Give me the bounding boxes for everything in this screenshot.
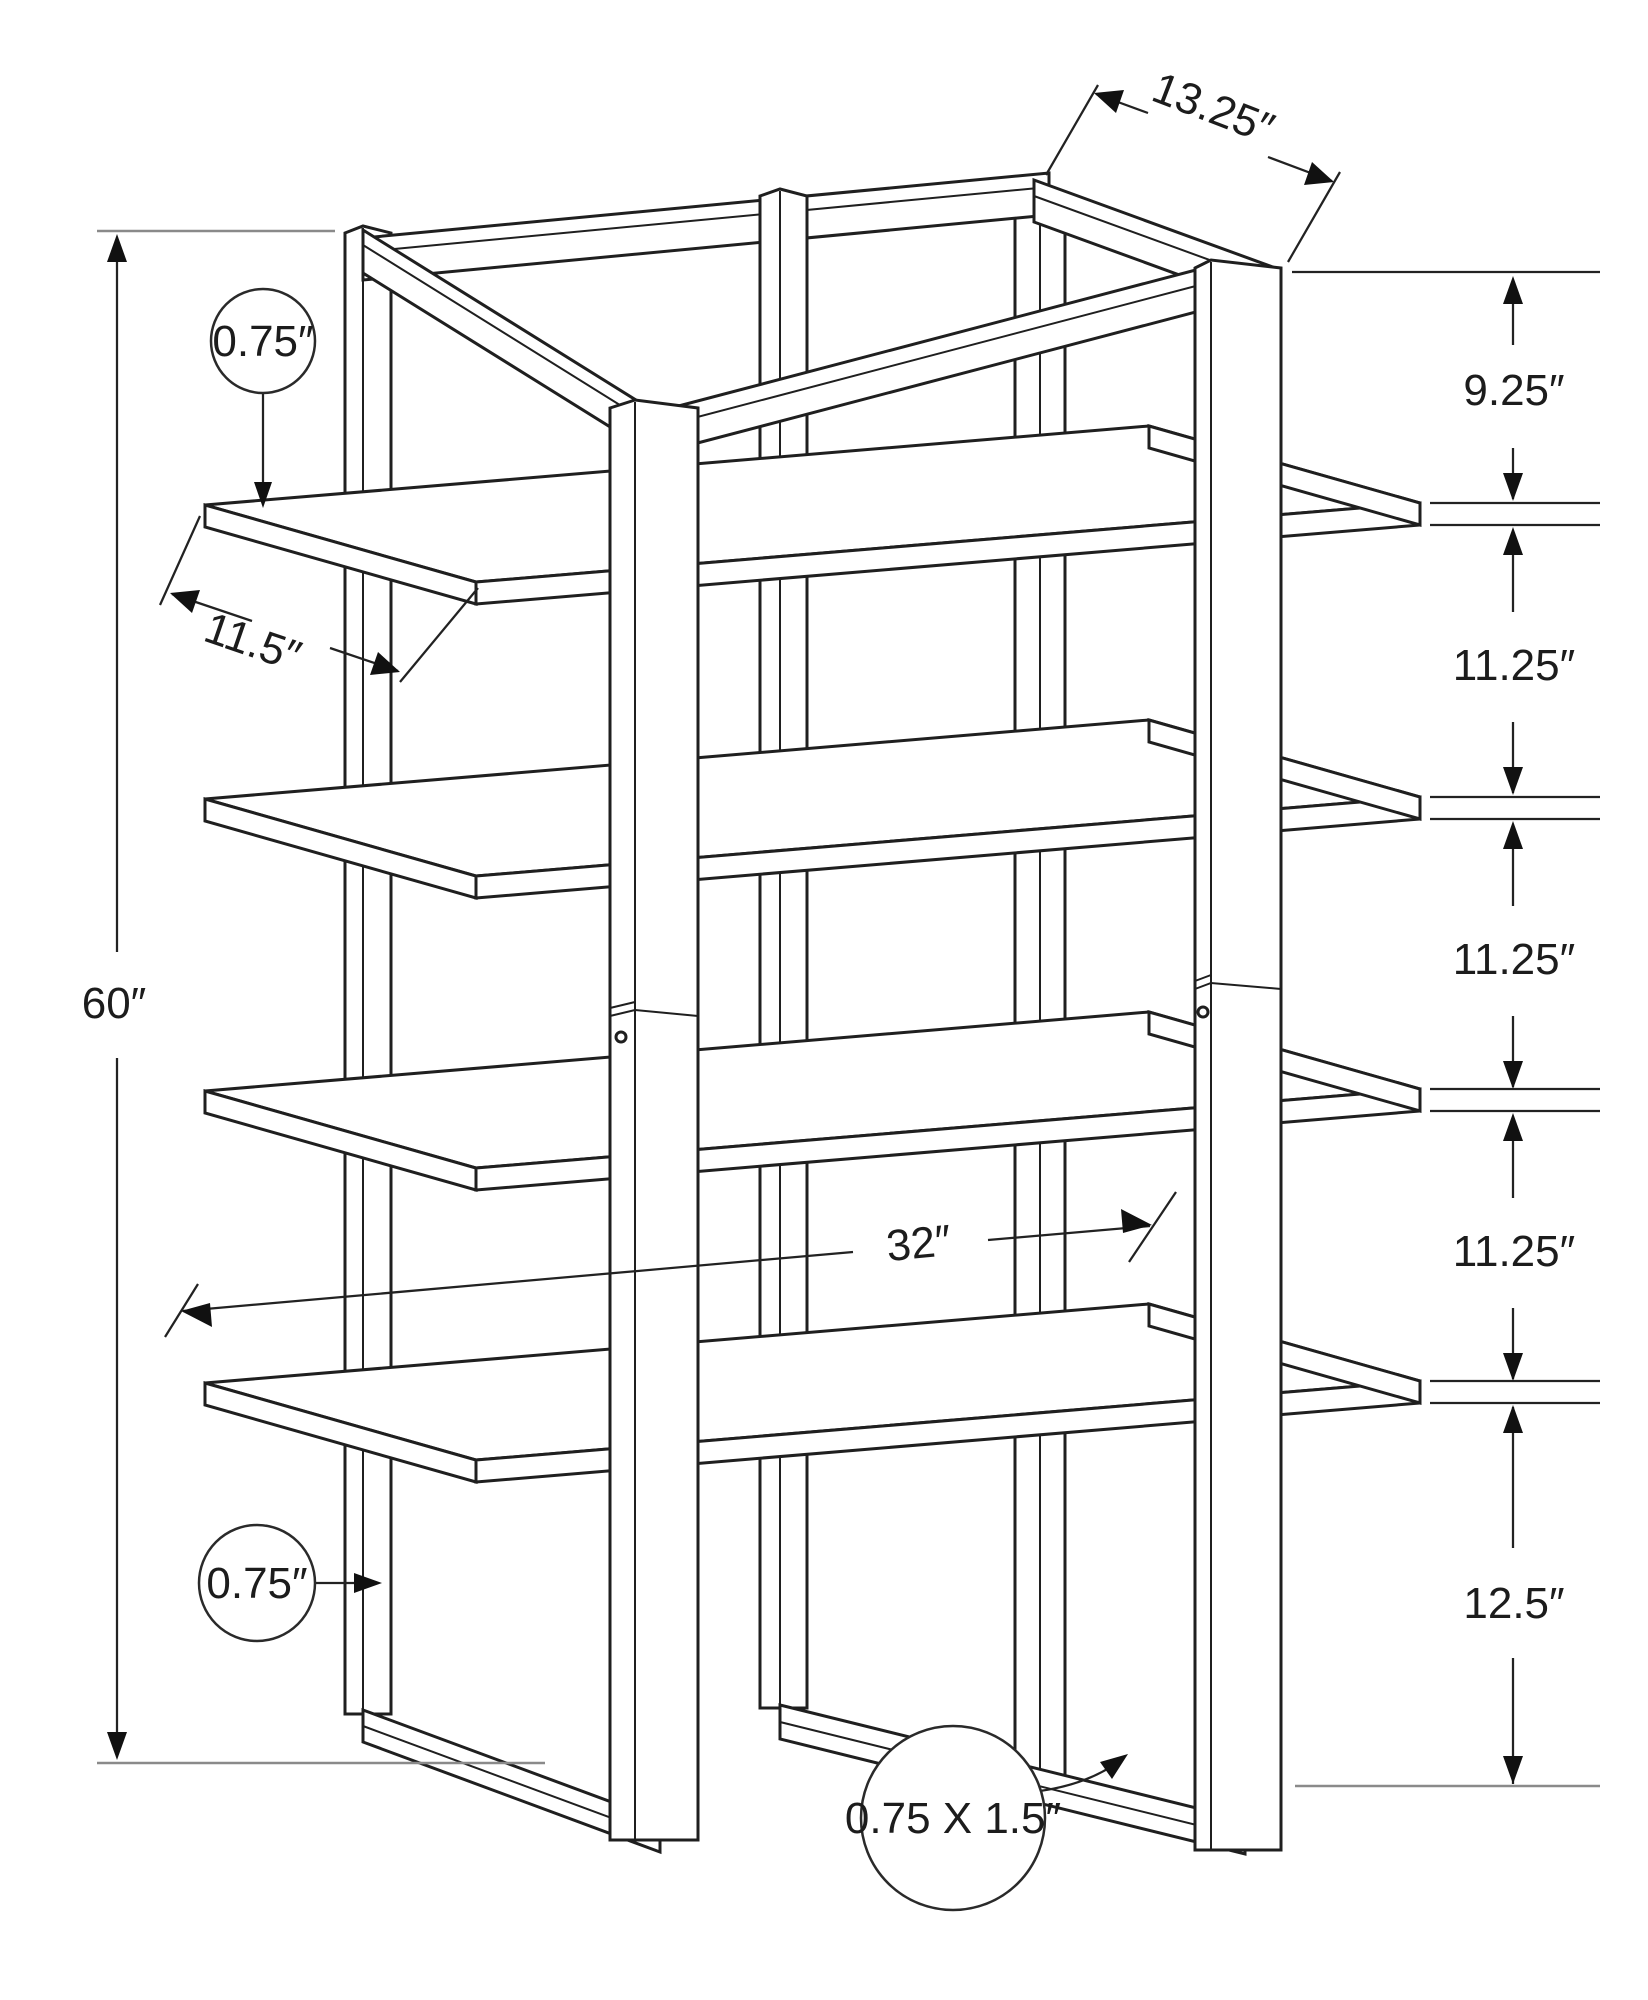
frame-depth-label: 13.25″ bbox=[1146, 63, 1281, 154]
left-post-screw-hole bbox=[616, 1032, 626, 1042]
top-front-beam-edge bbox=[648, 282, 1211, 430]
post-thickness-label: 0.75″ bbox=[206, 1559, 307, 1608]
right-front-post-body bbox=[1195, 260, 1281, 1850]
gap-1-arrow-down bbox=[1503, 767, 1523, 795]
callout-base-rail: 0.75 X 1.5″ bbox=[845, 1726, 1128, 1910]
gap-2-label: 11.25″ bbox=[1453, 935, 1575, 984]
shelf-depth-label: 11.5″ bbox=[198, 603, 307, 681]
gap-bottom-arrow-up bbox=[1503, 1405, 1523, 1433]
right-front-post bbox=[1195, 260, 1281, 1850]
gap-top-arrow-up bbox=[1503, 276, 1523, 304]
frame-depth-arrow-left bbox=[1094, 90, 1124, 113]
left-top-rail-edge bbox=[363, 245, 660, 430]
shelf-width-arrow-right bbox=[1121, 1209, 1152, 1233]
shelf-thickness-label: 0.75″ bbox=[212, 317, 313, 366]
frame-depth-ext-left bbox=[1046, 85, 1098, 175]
left-rear-post bbox=[345, 226, 391, 1714]
gap-3-label: 11.25″ bbox=[1453, 1227, 1575, 1276]
dim-total-height: 60″ bbox=[82, 231, 545, 1763]
right-post-screw-hole bbox=[1198, 1007, 1208, 1017]
gap-2-arrow-down bbox=[1503, 1061, 1523, 1089]
height-label: 60″ bbox=[82, 979, 147, 1028]
gap-top-label: 9.25″ bbox=[1463, 366, 1564, 415]
height-arrow-down bbox=[107, 1732, 127, 1760]
dim-gap-3: 11.25″ bbox=[1453, 1113, 1575, 1381]
gap-top-arrow-down bbox=[1503, 473, 1523, 501]
top-rear-beam bbox=[363, 173, 1049, 280]
shelf-width-line-a bbox=[183, 1252, 853, 1311]
height-arrow-up bbox=[107, 234, 127, 262]
dim-gap-1: 11.25″ bbox=[1453, 527, 1575, 795]
base-rail-label: 0.75 X 1.5″ bbox=[845, 1794, 1061, 1843]
shelf-depth-arrow-left bbox=[170, 590, 200, 613]
shelf-width-arrow-left bbox=[181, 1303, 212, 1327]
gap-1-arrow-up bbox=[1503, 527, 1523, 555]
dim-gap-2: 11.25″ bbox=[1453, 821, 1575, 1089]
gap-3-arrow-up bbox=[1503, 1113, 1523, 1141]
gap-1-label: 11.25″ bbox=[1453, 641, 1575, 690]
bottom-rails bbox=[363, 1705, 1245, 1854]
top-rear-beam-body bbox=[363, 173, 1049, 280]
etagere-dimension-diagram: 60″ 0.75″ 11.5″ 13.25″ bbox=[0, 0, 1648, 2000]
shelf-width-label: 32″ bbox=[884, 1216, 953, 1271]
left-front-post bbox=[610, 400, 698, 1840]
gap-bottom-arrow-down bbox=[1503, 1756, 1523, 1784]
gap-bottom-label: 12.5″ bbox=[1463, 1579, 1564, 1628]
shelf-depth-ext-right bbox=[400, 588, 478, 682]
diagram-canvas: 60″ 0.75″ 11.5″ 13.25″ bbox=[0, 0, 1648, 2000]
frame-depth-arrow-right bbox=[1304, 162, 1334, 185]
left-front-post-body bbox=[610, 400, 698, 1840]
gap-3-arrow-down bbox=[1503, 1353, 1523, 1381]
callout-shelf-thickness: 0.75″ bbox=[211, 289, 315, 508]
dim-gap-bottom: 12.5″ bbox=[1463, 1405, 1564, 1784]
dim-gap-top: 9.25″ bbox=[1463, 276, 1564, 501]
gap-2-arrow-up bbox=[1503, 821, 1523, 849]
base-rail-arrow bbox=[1100, 1754, 1128, 1779]
frame-depth-ext-right bbox=[1288, 172, 1340, 262]
